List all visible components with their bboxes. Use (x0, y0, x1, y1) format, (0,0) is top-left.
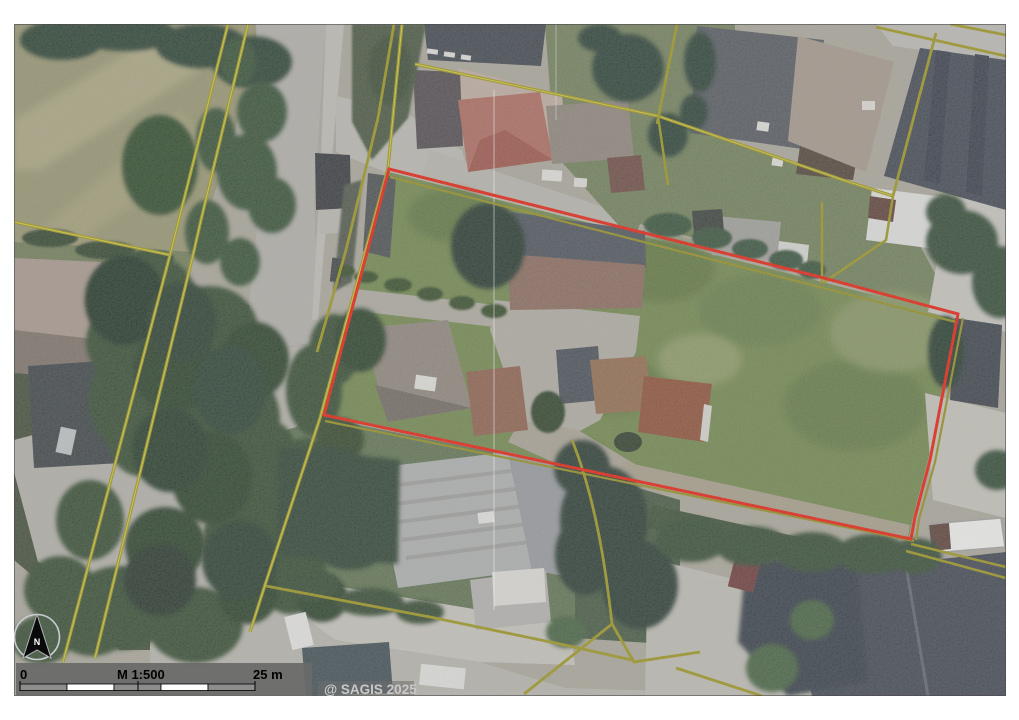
svg-text:M 1:500: M 1:500 (117, 667, 165, 682)
svg-text:0: 0 (20, 667, 27, 682)
svg-text:@ SAGIS 2025: @ SAGIS 2025 (324, 682, 417, 697)
svg-text:N: N (34, 637, 41, 647)
svg-text:25 m: 25 m (253, 667, 283, 682)
